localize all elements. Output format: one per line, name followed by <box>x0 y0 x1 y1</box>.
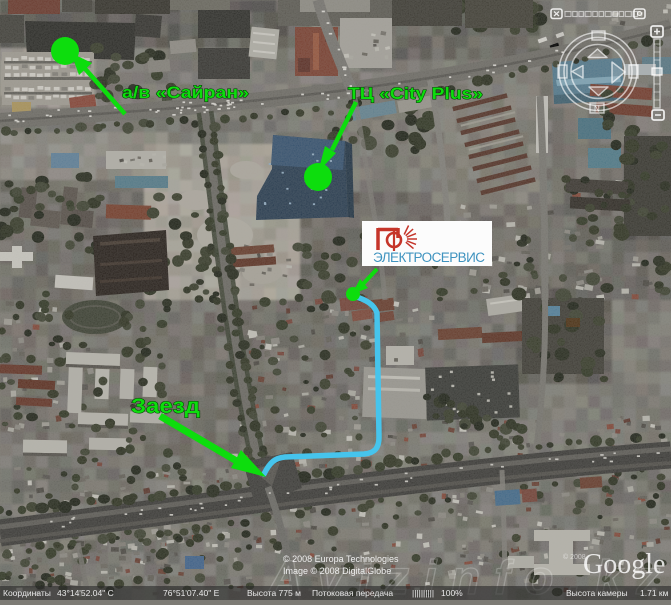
svg-text:Координаты: Координаты <box>3 588 51 598</box>
svg-text:Image © 2008 DigitalGlobe: Image © 2008 DigitalGlobe <box>283 566 391 576</box>
svg-text:Высота 775 м: Высота 775 м <box>247 588 301 598</box>
svg-text:100%: 100% <box>441 588 463 598</box>
svg-text:Google: Google <box>583 549 665 580</box>
svg-text:43°14'52.04" С: 43°14'52.04" С <box>57 588 114 598</box>
svg-text:||||||||||: |||||||||| <box>412 588 434 598</box>
svg-text:Потоковая передача: Потоковая передача <box>312 588 393 598</box>
svg-text:а/в «Сайран»: а/в «Сайран» <box>122 84 249 102</box>
svg-text:1.71 км: 1.71 км <box>640 588 669 598</box>
svg-text:N: N <box>594 105 600 114</box>
svg-text:76°51'07.40" Е: 76°51'07.40" Е <box>163 588 220 598</box>
svg-text:ТЦ «City Plus»: ТЦ «City Plus» <box>348 85 483 103</box>
svg-text:© 2008 Europa Technologies: © 2008 Europa Technologies <box>283 554 399 564</box>
svg-text:Заезд: Заезд <box>131 395 200 418</box>
svg-text:ЭЛЕКТРОСЕРВИС: ЭЛЕКТРОСЕРВИС <box>373 250 485 265</box>
svg-text:© 2008: © 2008 <box>563 553 586 561</box>
svg-text:Высота камеры: Высота камеры <box>566 588 628 598</box>
